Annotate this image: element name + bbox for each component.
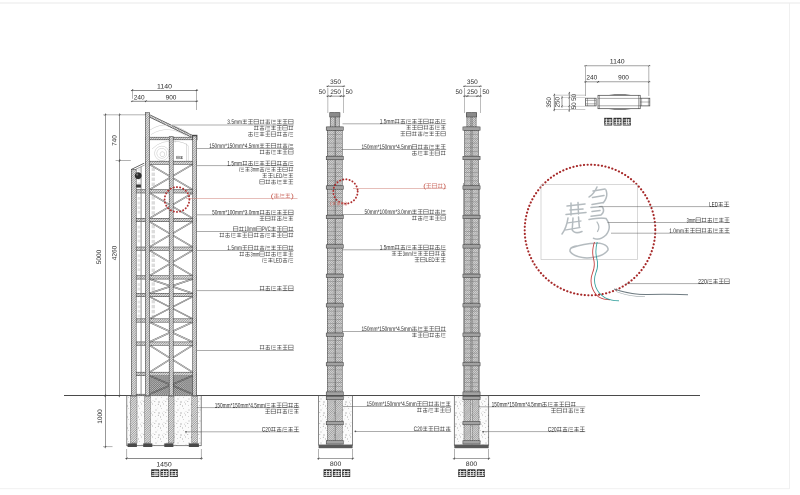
svg-text:10mm: 10mm: [244, 226, 256, 233]
svg-text:1.5mm: 1.5mm: [380, 245, 395, 252]
svg-text:220: 220: [698, 279, 707, 286]
svg-text:50: 50: [456, 89, 464, 96]
svg-text:900: 900: [618, 74, 629, 81]
svg-text:50: 50: [571, 93, 578, 101]
svg-text:150mm*150mm*4.5mm: 150mm*150mm*4.5mm: [215, 403, 265, 410]
svg-text:240: 240: [134, 94, 145, 101]
svg-text:LED: LED: [426, 257, 435, 264]
svg-text:LED: LED: [709, 202, 718, 209]
svg-text:250: 250: [554, 96, 561, 107]
svg-text:3mm: 3mm: [251, 251, 260, 258]
svg-text:LED: LED: [273, 173, 282, 180]
svg-text:4260: 4260: [111, 245, 118, 260]
svg-text:350: 350: [546, 97, 553, 108]
svg-text:50: 50: [571, 102, 578, 110]
svg-text:3mm: 3mm: [403, 251, 412, 258]
svg-text:900: 900: [166, 94, 177, 101]
svg-text:1140: 1140: [157, 83, 172, 90]
svg-text:350: 350: [467, 79, 478, 86]
svg-text:50: 50: [482, 89, 490, 96]
svg-text:1.0mm: 1.0mm: [669, 228, 684, 235]
svg-text:250: 250: [467, 89, 478, 96]
svg-text:800: 800: [466, 461, 478, 468]
svg-text:150mm*150mm*4.5mm: 150mm*150mm*4.5mm: [362, 326, 412, 333]
svg-text:3.5mm: 3.5mm: [227, 119, 242, 126]
svg-text:C20: C20: [548, 427, 557, 434]
svg-text:1450: 1450: [156, 461, 172, 468]
svg-text:1140: 1140: [610, 58, 625, 65]
svg-text:): ): [443, 183, 446, 190]
svg-text:3mm: 3mm: [687, 217, 696, 224]
svg-text:50mm*100mm*3.0mm: 50mm*100mm*3.0mm: [365, 209, 412, 216]
svg-text:800: 800: [330, 461, 342, 468]
svg-text:C20: C20: [262, 427, 271, 434]
svg-text:C20: C20: [414, 426, 423, 433]
svg-text:350: 350: [330, 79, 341, 86]
svg-text:50mm*100mm*3.0mm: 50mm*100mm*3.0mm: [212, 210, 259, 217]
svg-text:50: 50: [346, 89, 354, 96]
svg-text:150mm*150mm*4.5mm: 150mm*150mm*4.5mm: [209, 143, 259, 150]
svg-text:150mm*150mm*4.5mm: 150mm*150mm*4.5mm: [362, 144, 412, 151]
svg-text:250: 250: [330, 89, 341, 96]
svg-text:50: 50: [319, 89, 327, 96]
svg-text:1.5mm: 1.5mm: [380, 119, 395, 126]
svg-text:PVC: PVC: [262, 226, 271, 233]
svg-text:150mm*150mm*4.5mm: 150mm*150mm*4.5mm: [492, 402, 542, 409]
svg-text:5000: 5000: [96, 249, 103, 264]
svg-text:): ): [291, 193, 294, 200]
svg-text:150mm*150mm*4.5mm: 150mm*150mm*4.5mm: [367, 401, 417, 408]
svg-text:LED: LED: [273, 258, 282, 265]
svg-text:740: 740: [111, 135, 118, 146]
svg-text:1.5mm: 1.5mm: [227, 245, 242, 252]
svg-text:1.5mm: 1.5mm: [227, 161, 242, 168]
svg-text:3mm: 3mm: [251, 167, 260, 174]
svg-text:1000: 1000: [97, 409, 104, 424]
svg-text:240: 240: [586, 74, 597, 81]
